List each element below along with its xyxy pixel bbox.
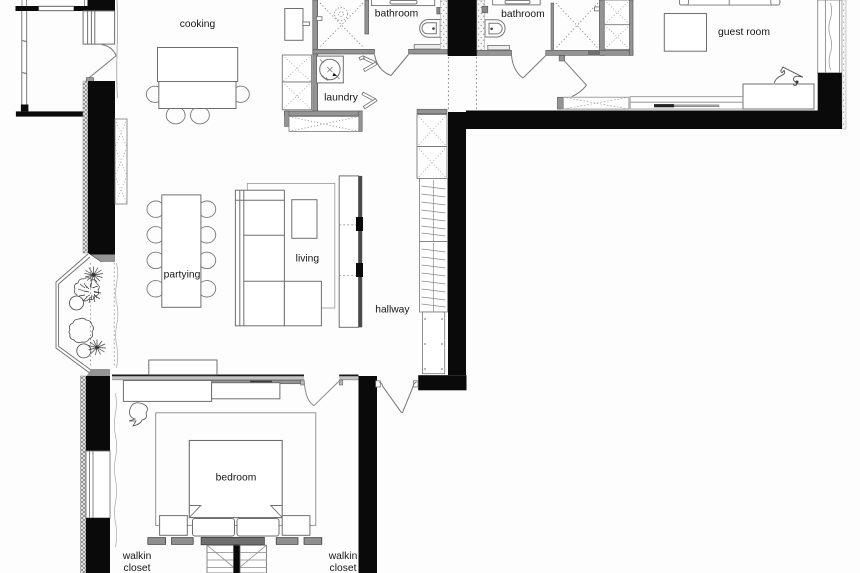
svg-text:bathroom: bathroom [375,9,419,20]
svg-text:cooking: cooking [180,19,216,30]
svg-text:closet: closet [124,563,151,573]
svg-text:partying: partying [164,270,201,281]
svg-text:hallway: hallway [375,305,410,316]
svg-text:living: living [296,254,320,265]
svg-text:guest room: guest room [718,27,770,38]
svg-text:bedroom: bedroom [216,473,257,484]
svg-text:walkin: walkin [122,551,152,562]
svg-text:walkin: walkin [328,551,358,562]
svg-text:bathroom: bathroom [501,9,545,20]
svg-text:laundry: laundry [324,93,359,104]
svg-text:closet: closet [330,563,357,573]
